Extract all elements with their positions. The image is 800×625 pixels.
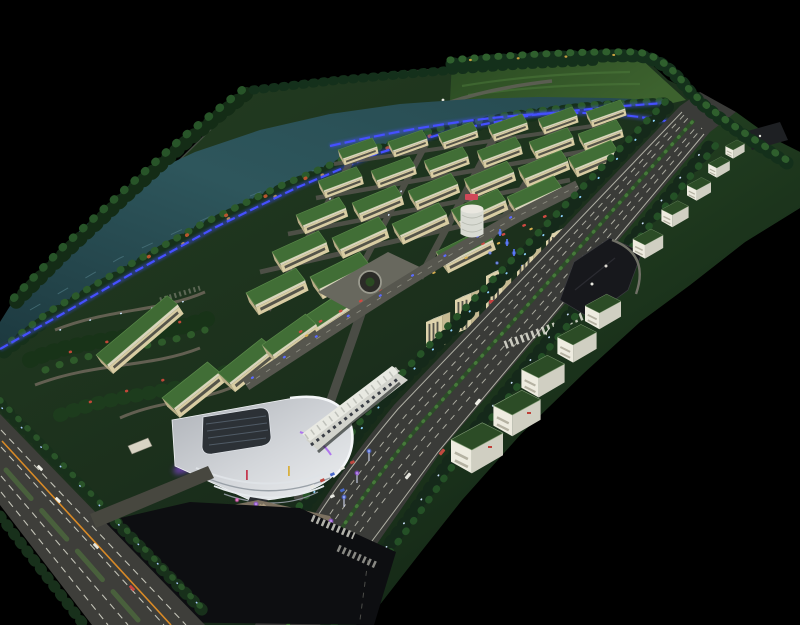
car-dot [605, 265, 608, 268]
pink-glow-dot [234, 497, 239, 502]
model-photo [0, 0, 800, 625]
sign-red [527, 412, 531, 414]
drum-sign [465, 194, 478, 200]
car-dot [591, 283, 594, 286]
scene-canvas [0, 0, 800, 625]
sign-red [488, 446, 492, 448]
car-dot [759, 135, 761, 137]
